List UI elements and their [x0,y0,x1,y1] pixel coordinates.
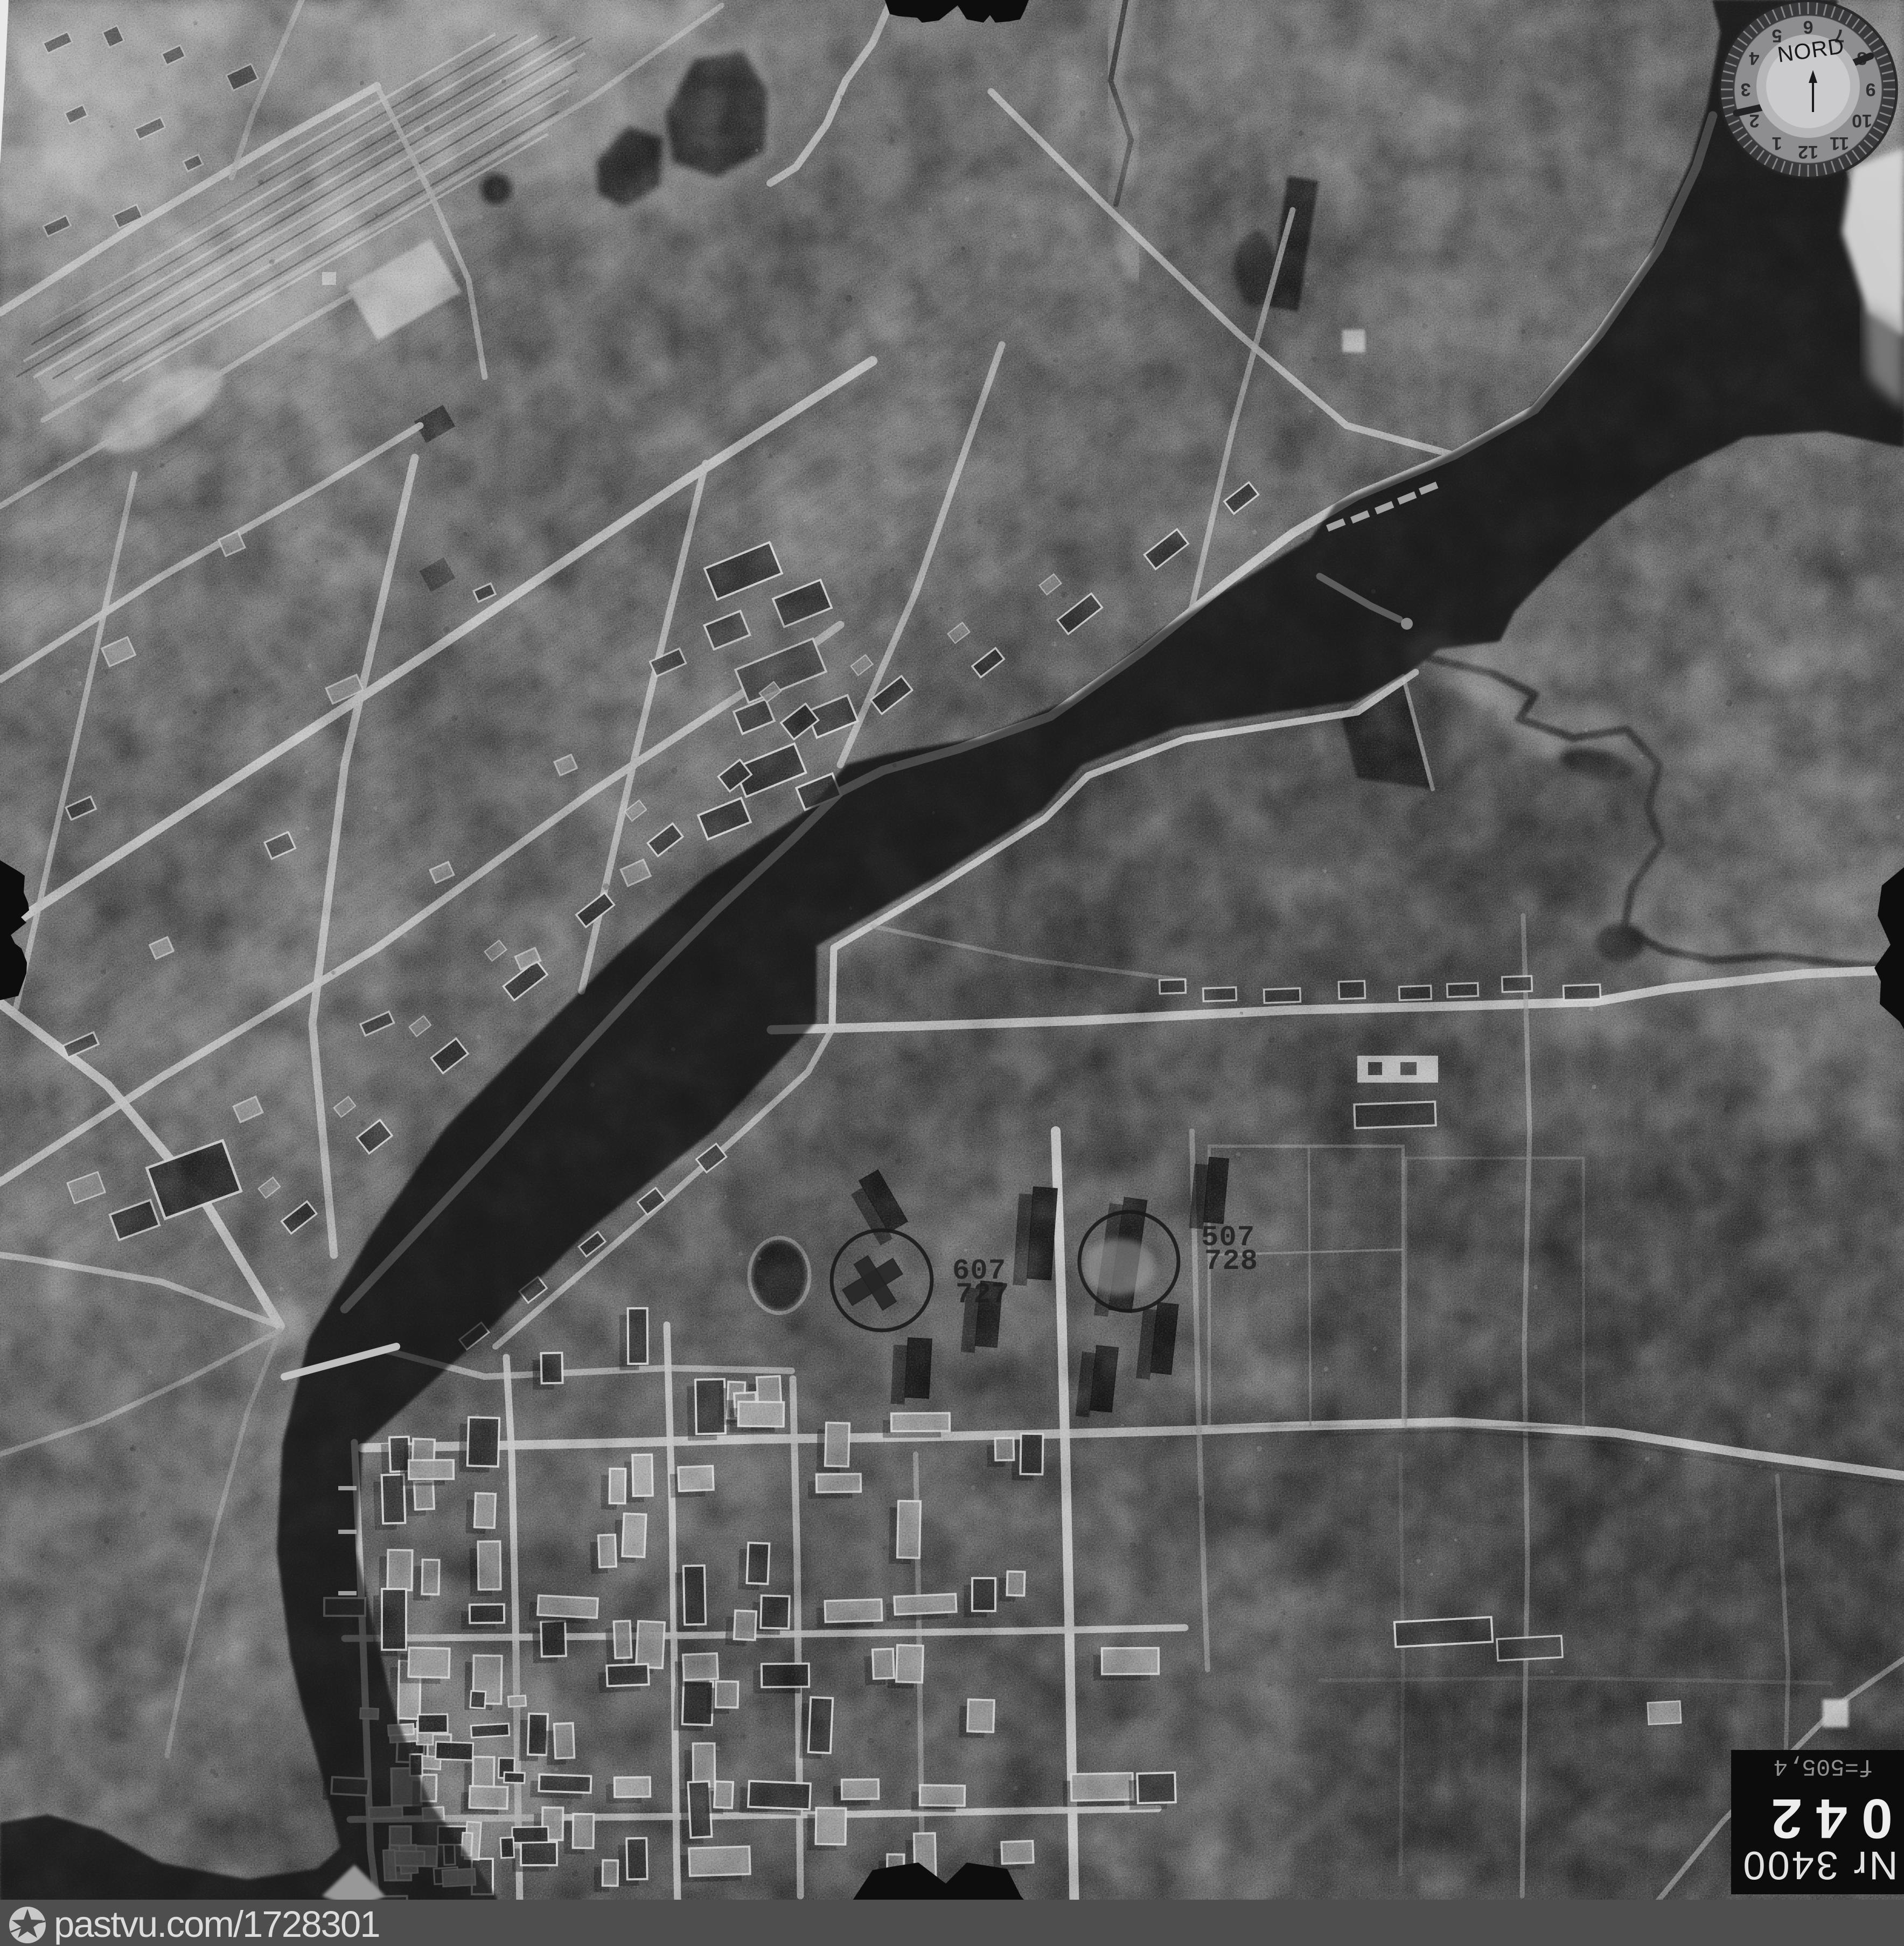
svg-text:f=505,4: f=505,4 [1774,1753,1873,1780]
svg-text:727: 727 [956,1279,1009,1312]
svg-text:4: 4 [1749,48,1759,68]
svg-text:2: 2 [1749,110,1760,131]
svg-text:6: 6 [1803,17,1814,37]
svg-text:12: 12 [1798,142,1818,162]
svg-text:pastvu.com/1728301: pastvu.com/1728301 [54,1903,380,1945]
svg-text:3: 3 [1741,79,1751,100]
svg-text:1: 1 [1772,133,1782,154]
svg-text:11: 11 [1830,133,1849,154]
svg-text:9: 9 [1866,79,1876,100]
svg-text:Nr 3400: Nr 3400 [1741,1843,1898,1888]
svg-text:10: 10 [1852,110,1872,131]
svg-text:042: 042 [1757,1787,1893,1850]
svg-text:728: 728 [1204,1245,1258,1278]
